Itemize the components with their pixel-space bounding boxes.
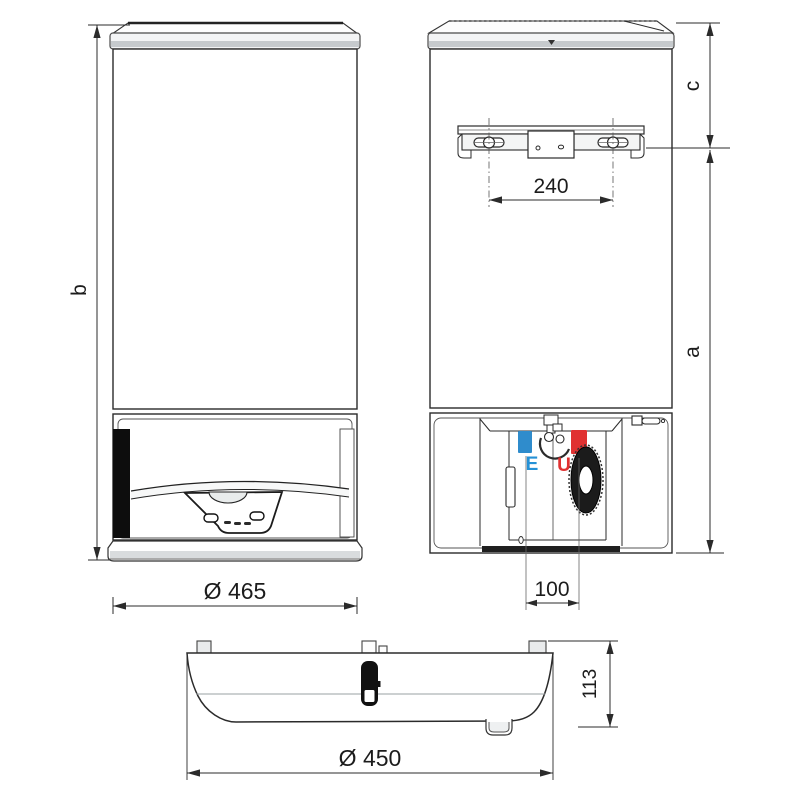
bracket-screw-hole-right [558,145,563,149]
side-fitting-block [632,416,642,425]
dim-100-label: 100 [534,578,569,601]
side-fitting-pipe [642,418,660,424]
technical-drawing-canvas: b Ø 465 [0,0,800,800]
rear-body [430,49,672,408]
dim-465-label: Ø 465 [204,578,267,604]
dim-c-arrow-up [706,23,713,36]
front-body [113,49,357,409]
dim-100-arrow-right [568,600,579,606]
dim-450-arrow-left [187,769,200,776]
bottom-handle-nub [377,681,381,687]
bottom-view [187,641,553,735]
drain-fitting-inner [489,722,509,732]
bottom-handle-window [365,690,375,702]
dim-113-arrow-down [606,714,613,727]
dim-b-arrow-down [93,547,100,560]
dim-a-arrow-up [706,150,713,163]
bottom-tab-center [362,641,376,653]
cold-inlet-pipe [518,431,532,453]
dim-113-arrow-up [606,641,613,654]
cold-inlet-label: E [526,454,539,475]
panel-button-left [204,514,218,522]
dim-a-arrow-down [706,540,713,553]
dim-450-label: Ø 450 [339,745,402,771]
front-view [108,23,362,561]
cable-grommet-hole [579,466,593,494]
valve-block [553,424,562,431]
recess-bottom-band [482,546,620,552]
rear-lid-top-surface [429,21,673,33]
recess-small-hole [519,537,523,544]
dim-465-arrow-right [344,602,357,609]
side-fitting-tip [661,419,664,422]
panel-button-dash [244,522,251,525]
dim-c-label: c [681,81,704,92]
front-black-side-bar [113,429,130,538]
dim-c-arrow-down [706,135,713,148]
bracket-center-plate [528,131,574,158]
hot-outlet-label: U [557,455,571,476]
valve-fitting-right [556,435,564,443]
dim-113-label: 113 [580,669,601,699]
bottom-tab-small [379,646,387,653]
panel-button-right [250,512,264,520]
rear-view: E U [428,21,674,553]
water-heater-dimension-drawing: b Ø 465 [0,0,800,800]
recess-slot [506,467,515,507]
dim-a-label: a [681,346,704,358]
dim-240-label: 240 [533,175,568,198]
dim-450-arrow-right [540,769,553,776]
front-lid-band-strip [111,41,359,47]
dim-b-label: b [68,284,91,296]
dim-465-arrow-left [113,602,126,609]
bottom-tab-left [197,641,211,653]
panel-button-dash [234,522,241,525]
front-right-side-strip [340,429,354,537]
front-base-strip [110,551,360,558]
bracket-screw-hole-left [536,146,540,150]
bottom-tab-right [529,641,546,653]
panel-button-dash [224,521,231,524]
front-lid-top-surface [112,23,358,34]
dim-b-arrow-up [93,25,100,38]
valve-fitting-left [545,433,554,442]
